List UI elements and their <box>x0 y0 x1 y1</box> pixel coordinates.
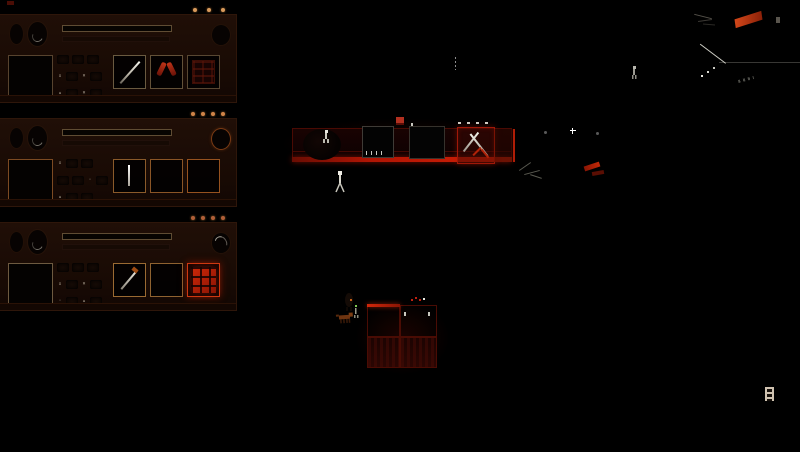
light-sparkle <box>596 132 599 135</box>
status-dot-icon <box>211 112 215 116</box>
status-dot-icon <box>207 8 211 12</box>
status-dot-icon <box>221 216 225 220</box>
red-debris <box>592 170 605 176</box>
item-slot-2[interactable] <box>150 263 183 297</box>
status-dot-icon <box>201 216 205 220</box>
stat-glyph-icon: ▫ <box>57 159 63 168</box>
item-slots <box>113 263 220 297</box>
item-slot-3[interactable] <box>187 263 220 297</box>
status-dot-icon <box>193 8 197 12</box>
storage-ticks <box>366 151 386 155</box>
gauge-clock-icon <box>211 232 231 254</box>
light-sparkle <box>455 57 456 70</box>
stat-icon <box>72 263 84 272</box>
grass-decor <box>530 174 542 179</box>
status-dots <box>191 112 225 116</box>
room-cell-bl[interactable] <box>367 337 400 368</box>
stat-grid: ▫·▴ <box>57 157 111 203</box>
room-cell-br[interactable] <box>400 337 437 368</box>
flag-marker <box>396 117 404 125</box>
item-slot-2[interactable] <box>150 55 183 89</box>
rifle-item-icon <box>114 56 145 88</box>
unit-panel-3[interactable]: ▫×·▴ <box>0 222 237 311</box>
survivor-on-platform[interactable] <box>321 130 331 144</box>
item-slot-3[interactable] <box>187 159 220 193</box>
zipline-rope <box>719 62 800 63</box>
unit-portrait[interactable] <box>8 55 53 97</box>
gray-speck <box>776 17 780 23</box>
gauge-dial-icon <box>27 229 48 255</box>
room-cell-tr[interactable] <box>400 305 437 337</box>
status-dots <box>193 8 225 12</box>
stat-icon <box>90 280 102 289</box>
stat-icon <box>57 176 69 185</box>
status-dot-icon <box>211 216 215 220</box>
status-dot-icon <box>201 112 205 116</box>
platform-edge[interactable] <box>494 129 515 162</box>
gauge-clock-icon <box>211 24 231 46</box>
light-sparkle <box>544 131 547 134</box>
room-roof-highlight <box>367 304 400 307</box>
item-slot-3[interactable] <box>187 55 220 89</box>
stat-icon <box>72 176 84 185</box>
exit-ladder[interactable] <box>765 387 774 401</box>
zipline-dots <box>701 75 703 77</box>
panel-footer <box>0 303 236 310</box>
stat-icon <box>66 280 78 289</box>
stat-icon <box>57 55 69 64</box>
status-dot-icon <box>191 216 195 220</box>
item-slot-1[interactable] <box>113 263 146 297</box>
status-dot-icon <box>191 112 195 116</box>
status-dots <box>191 216 225 220</box>
item-slot-2[interactable] <box>150 159 183 193</box>
tiny-speck <box>404 312 406 316</box>
unit-portrait[interactable] <box>8 159 53 201</box>
unit-panel-2[interactable]: ▫·▴ <box>0 118 237 207</box>
gauge-small-icon <box>9 231 24 253</box>
gauge-dial-icon <box>27 21 48 47</box>
survivor-below-platform[interactable] <box>333 171 347 193</box>
room-grid[interactable] <box>367 305 437 368</box>
stat-icon <box>57 263 69 272</box>
stat-icon <box>81 159 93 168</box>
gauge-small-icon <box>9 127 24 149</box>
stat-grid: ▫×▴× <box>57 53 111 99</box>
crate-item-icon <box>192 60 215 84</box>
panel-footer <box>0 199 236 206</box>
status-dot-icon <box>221 8 225 12</box>
dashed-line <box>458 122 494 124</box>
tiny-speck <box>428 312 430 316</box>
item-slots <box>113 55 220 89</box>
stat-icon <box>96 176 108 185</box>
wishbone-item-icon <box>151 56 182 88</box>
room-cell-tl[interactable] <box>367 305 400 337</box>
stat-icon <box>87 263 99 272</box>
survivor-marker[interactable] <box>353 305 360 319</box>
zipline-dashes <box>738 76 754 83</box>
primary-bar <box>62 233 172 240</box>
tool-station[interactable] <box>457 127 495 164</box>
gauge-small-icon <box>9 23 24 45</box>
status-dot-icon <box>221 112 225 116</box>
stat-icon <box>72 55 84 64</box>
survivor-far-right[interactable] <box>630 66 638 80</box>
stat-grid: ▫×·▴ <box>57 261 111 307</box>
panel-footer <box>0 95 236 102</box>
secondary-bar <box>62 36 170 42</box>
gauge-clock-icon <box>211 128 231 150</box>
roof-decor <box>735 11 763 28</box>
scribble-decor <box>703 23 715 25</box>
item-slot-1[interactable] <box>113 55 146 89</box>
scribble-decor <box>698 19 712 22</box>
unit-portrait[interactable] <box>8 263 53 305</box>
light-sparkle-star <box>570 128 576 134</box>
item-slot-1[interactable] <box>113 159 146 193</box>
stat-icon <box>66 72 78 81</box>
primary-bar <box>62 129 172 136</box>
corner-mark <box>7 1 14 5</box>
unit-panel-1[interactable]: ▫×▴× <box>0 14 237 103</box>
stat-glyph-icon: × <box>81 72 87 81</box>
stat-icon <box>90 72 102 81</box>
resource-marker <box>411 297 425 303</box>
secondary-bar <box>62 244 170 250</box>
storage-box-b[interactable] <box>409 126 445 159</box>
stat-icon <box>66 159 78 168</box>
stat-icon <box>87 55 99 64</box>
stat-glyph-icon: · <box>87 176 93 185</box>
item-slots <box>113 159 220 193</box>
game-screen: ▫×▴× ▫·▴ ▫×·▴ <box>0 0 800 452</box>
rod-item-icon <box>114 160 145 192</box>
stat-glyph-icon: ▫ <box>57 72 63 81</box>
secondary-bar <box>62 140 170 146</box>
tiny-speck <box>411 123 413 126</box>
redgrid-item-icon <box>191 267 216 293</box>
zipline[interactable] <box>700 44 726 64</box>
red-cross-mark <box>472 147 481 156</box>
gauge-dial-icon <box>27 125 48 151</box>
primary-bar <box>62 25 172 32</box>
stat-glyph-icon: × <box>81 280 87 289</box>
pick-item-icon <box>114 264 145 296</box>
stat-glyph-icon: ▫ <box>57 280 63 289</box>
